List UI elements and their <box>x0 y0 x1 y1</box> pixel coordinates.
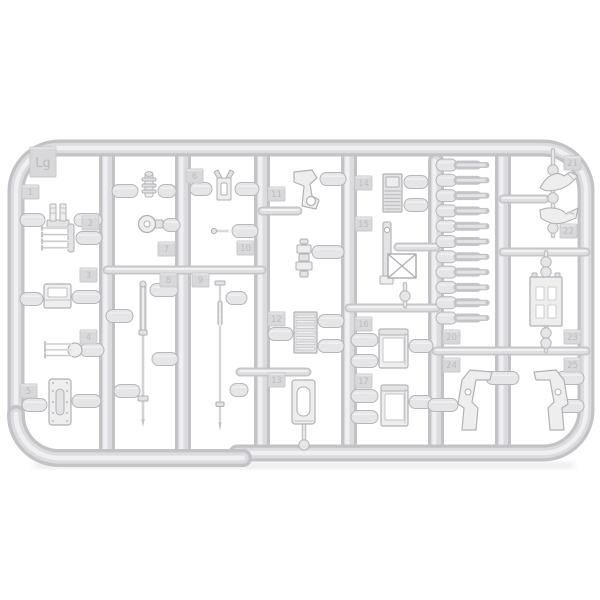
part-ribbed-rod <box>138 281 148 427</box>
comb-row <box>436 297 488 309</box>
part-light-bracket <box>294 170 319 209</box>
svg-text:11: 11 <box>271 190 282 200</box>
runner-bar <box>107 269 262 270</box>
number-tab-3: 3 <box>80 268 97 282</box>
gate-pill <box>351 390 378 403</box>
number-tab-7: 7 <box>158 242 175 256</box>
svg-text:22: 22 <box>563 227 574 237</box>
gate-pill <box>22 399 47 412</box>
gate-pill <box>232 225 258 238</box>
svg-text:23: 23 <box>567 333 578 343</box>
ball-gate <box>400 284 410 306</box>
svg-text:2: 2 <box>88 219 93 229</box>
comb-row <box>436 251 488 263</box>
svg-text:9: 9 <box>198 276 203 286</box>
part-lever-right <box>534 370 568 430</box>
part-shackle-pair <box>47 204 69 227</box>
part-fork-4prong <box>42 224 74 252</box>
gate-pill <box>190 183 212 196</box>
svg-text:25: 25 <box>567 361 578 371</box>
runner-col-a <box>105 150 107 458</box>
toothed-spike-comb <box>436 159 488 324</box>
runner-bar <box>262 210 298 211</box>
runner-col-b <box>181 150 183 458</box>
gate-pill <box>72 395 101 408</box>
comb-row <box>436 220 488 232</box>
part-stowage-box <box>44 284 71 308</box>
svg-text:15: 15 <box>358 220 369 230</box>
runner-col-c <box>260 150 262 453</box>
part-clamp-horn <box>214 170 234 200</box>
comb-row <box>436 281 488 293</box>
gate-pill <box>114 385 140 398</box>
number-tab-5: 5 <box>20 384 37 398</box>
runner-bar <box>398 246 436 247</box>
number-tab-12: 12 <box>268 312 285 326</box>
svg-text:7: 7 <box>164 245 169 255</box>
gate-pill <box>318 315 344 328</box>
number-tab-15: 15 <box>355 217 372 231</box>
gate-pill <box>312 246 344 259</box>
part-periscope-stack <box>296 239 312 277</box>
gate-pill <box>235 183 259 196</box>
comb-row <box>436 190 488 202</box>
runner-bar <box>240 371 307 372</box>
gate-pill <box>106 310 133 323</box>
comb-row <box>436 236 488 248</box>
sprue-image: Lg1234567891011121314151617202122232425 <box>0 0 600 600</box>
runner-bar <box>436 350 586 351</box>
svg-text:6: 6 <box>192 172 197 182</box>
svg-text:4: 4 <box>86 333 91 343</box>
comb-row <box>436 205 488 217</box>
gate-pill <box>163 219 180 232</box>
part-lever-left <box>458 370 492 430</box>
part-hole-plate <box>530 273 562 326</box>
number-tab-21: 21 <box>564 156 581 170</box>
gate-pill <box>409 340 433 353</box>
runner-bar <box>349 307 436 308</box>
svg-text:24: 24 <box>446 361 457 371</box>
gate-pill <box>158 185 176 198</box>
part-x-frame <box>388 254 416 278</box>
gate-pill <box>76 232 102 245</box>
svg-text:5: 5 <box>26 387 31 397</box>
gate-pill <box>318 340 344 353</box>
svg-text:14: 14 <box>358 179 369 189</box>
number-tab-2: 2 <box>82 216 99 230</box>
sprue-product-photo: Light grey injection-molded plastic mode… <box>0 0 600 600</box>
svg-text:10: 10 <box>240 244 251 254</box>
svg-text:17: 17 <box>358 377 369 387</box>
number-tab-25: 25 <box>564 358 581 372</box>
number-tab-22: 22 <box>560 224 577 238</box>
gate-pill <box>112 185 138 198</box>
number-tab-1: 1 <box>22 185 39 199</box>
part-tow-hook-b <box>540 208 578 224</box>
gate-pill <box>230 384 248 397</box>
part-hatch-door <box>292 380 315 424</box>
number-tab-9: 9 <box>192 273 209 287</box>
part-bin-lower <box>381 385 408 426</box>
gate-pill <box>72 291 101 304</box>
part-riveted-plate <box>49 379 71 425</box>
part-fork-3prong <box>45 342 82 358</box>
ball-gate <box>299 424 309 450</box>
part-track-pad <box>294 312 317 353</box>
part-wheel-knob <box>139 216 164 233</box>
number-tab-17: 17 <box>355 374 372 388</box>
gate-pill <box>320 173 346 186</box>
sprue-letter-tab: Lg <box>30 147 56 177</box>
gate-pill <box>351 411 378 424</box>
gate-pill <box>351 334 378 347</box>
gate-pill <box>268 328 293 341</box>
gate-pill <box>404 199 428 212</box>
svg-text:1: 1 <box>28 188 33 198</box>
gate-pill <box>404 176 428 189</box>
svg-text:8: 8 <box>166 276 171 286</box>
number-tab-10: 10 <box>237 241 254 255</box>
gate-pill <box>351 355 378 368</box>
gate-pill <box>428 399 458 412</box>
comb-row <box>436 174 488 186</box>
number-tab-11: 11 <box>268 187 285 201</box>
gate-pill <box>20 293 43 306</box>
comb-row <box>436 266 488 278</box>
svg-text:16: 16 <box>358 320 369 330</box>
svg-text:Lg: Lg <box>35 156 51 171</box>
svg-text:20: 20 <box>446 333 457 343</box>
part-pump-cylinder <box>142 172 156 197</box>
number-tab-14: 14 <box>355 176 372 190</box>
part-radiator-grille <box>383 174 402 212</box>
number-tab-16: 16 <box>355 317 372 331</box>
number-tab-24: 24 <box>443 358 460 372</box>
gate-pill <box>152 353 178 366</box>
comb-row <box>436 312 488 324</box>
gate-pill <box>20 214 45 227</box>
comb-row <box>436 159 488 171</box>
number-tab-13: 13 <box>268 373 285 387</box>
number-tab-20: 20 <box>443 330 460 344</box>
number-tab-23: 23 <box>564 330 581 344</box>
gate-pill <box>226 292 247 305</box>
svg-text:13: 13 <box>271 376 282 386</box>
svg-text:3: 3 <box>86 271 91 281</box>
part-tow-hook-a <box>540 172 578 191</box>
svg-text:21: 21 <box>567 159 578 169</box>
gate-pill <box>80 344 104 357</box>
part-plain-rod <box>215 281 225 432</box>
number-tab-6: 6 <box>186 169 203 183</box>
svg-text:12: 12 <box>271 315 282 325</box>
part-small-pin <box>211 228 228 233</box>
runner-col-d <box>347 150 349 453</box>
ball-gate <box>541 324 551 351</box>
number-tab-4: 4 <box>80 330 97 344</box>
runner-bar <box>503 198 545 199</box>
part-bin-upper <box>379 329 408 368</box>
number-tab-8: 8 <box>160 273 177 287</box>
